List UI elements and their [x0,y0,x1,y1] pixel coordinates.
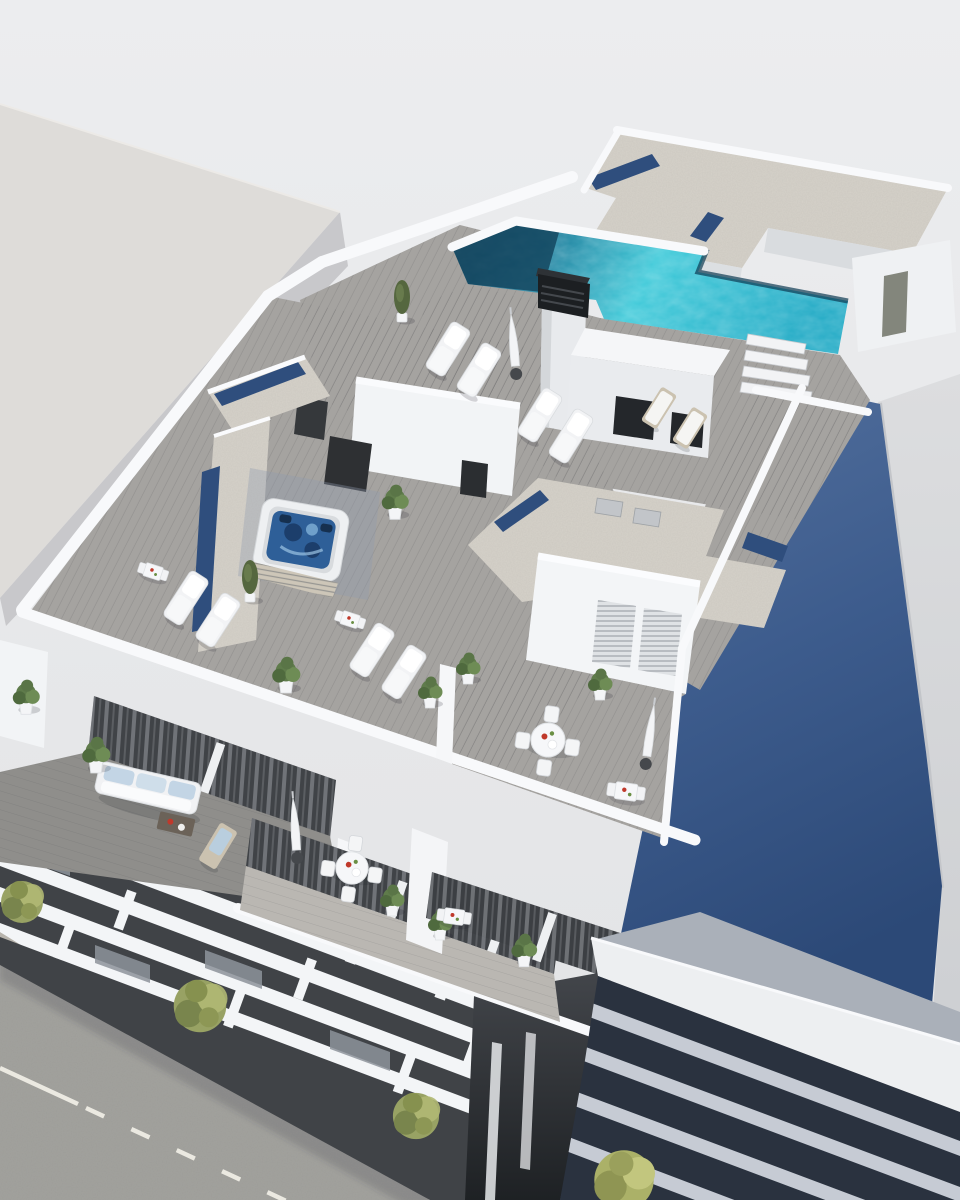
roof-access-door [882,271,908,337]
penthouse-room-a [566,328,730,458]
architectural-render [0,0,960,1200]
room-door [460,460,488,498]
